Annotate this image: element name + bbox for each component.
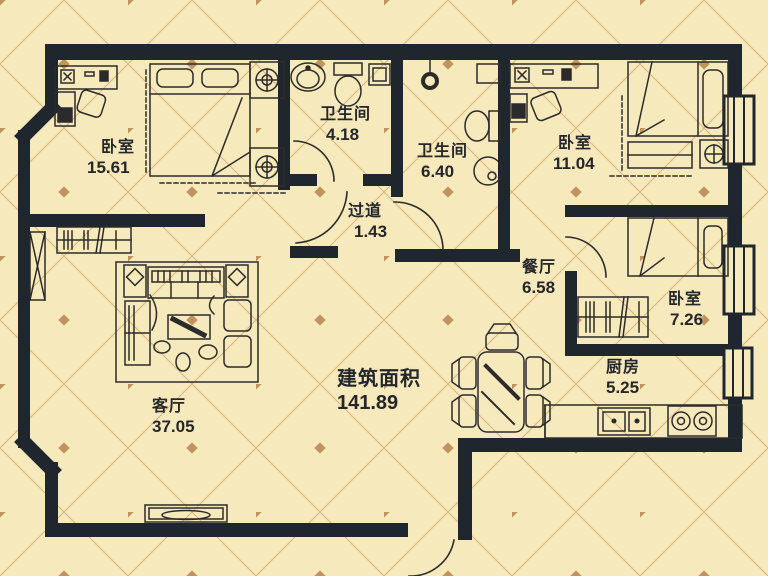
floor-plan-page: 卧室 15.61 卫生间 4.18 卫生间 6.40 过道 1.43 卧室 11…: [0, 0, 768, 576]
total-area-title: 建筑面积: [337, 368, 421, 392]
room-name: 卫生间: [417, 143, 468, 162]
room-name: 卧室: [87, 139, 135, 158]
total-area-value: 141.89: [337, 392, 421, 416]
room-area: 7.26: [668, 310, 703, 330]
room-name: 卧室: [668, 291, 703, 310]
room-name: 厨房: [606, 359, 640, 378]
wall-bath640-right: [498, 60, 510, 262]
floor-plan-drawing: [0, 0, 768, 576]
wall-bed7-left: [565, 271, 577, 356]
wall-entry-stub: [458, 452, 472, 540]
label-kitchen: 厨房 5.25: [606, 359, 640, 398]
room-name: 卫生间: [320, 106, 371, 125]
label-bedroom-master: 卧室 15.61: [87, 139, 135, 178]
room-area: 6.40: [417, 162, 468, 182]
label-bathroom-small: 卫生间 4.18: [320, 106, 371, 145]
wall-living-bottom: [45, 523, 408, 537]
label-hallway: 过道 1.43: [348, 203, 387, 242]
wall-kitchen-top: [565, 344, 742, 356]
label-dining-room: 餐厅 6.58: [522, 259, 556, 298]
wall-bathrooms-divider: [391, 60, 403, 197]
room-area: 1.43: [348, 222, 387, 242]
room-area: 15.61: [87, 158, 135, 178]
window-kitchen-icon: [724, 348, 752, 398]
wall-kitchen-bottom: [458, 438, 742, 452]
wall-top: [45, 44, 742, 60]
room-name: 客厅: [152, 398, 195, 417]
wall-living-top-right: [395, 249, 520, 262]
wall-bed11-bottom: [565, 205, 728, 217]
wall-bed15-bottom: [18, 214, 205, 227]
room-name: 过道: [348, 203, 387, 222]
label-total-area: 建筑面积 141.89: [337, 368, 421, 415]
wall-left: [18, 130, 30, 448]
room-area: 11.04: [553, 154, 595, 174]
label-bedroom-small: 卧室 7.26: [668, 291, 703, 330]
label-bathroom-large: 卫生间 6.40: [417, 143, 468, 182]
room-area: 6.58: [522, 278, 556, 298]
room-area: 4.18: [320, 125, 371, 145]
wall-living-top-left: [290, 246, 338, 258]
label-bedroom-right: 卧室 11.04: [553, 135, 595, 174]
room-name: 卧室: [553, 135, 595, 154]
room-name: 餐厅: [522, 259, 556, 278]
label-living-room: 客厅 37.05: [152, 398, 195, 437]
lattice-pattern: [0, 0, 768, 576]
room-area: 5.25: [606, 378, 640, 398]
room-area: 37.05: [152, 417, 195, 437]
